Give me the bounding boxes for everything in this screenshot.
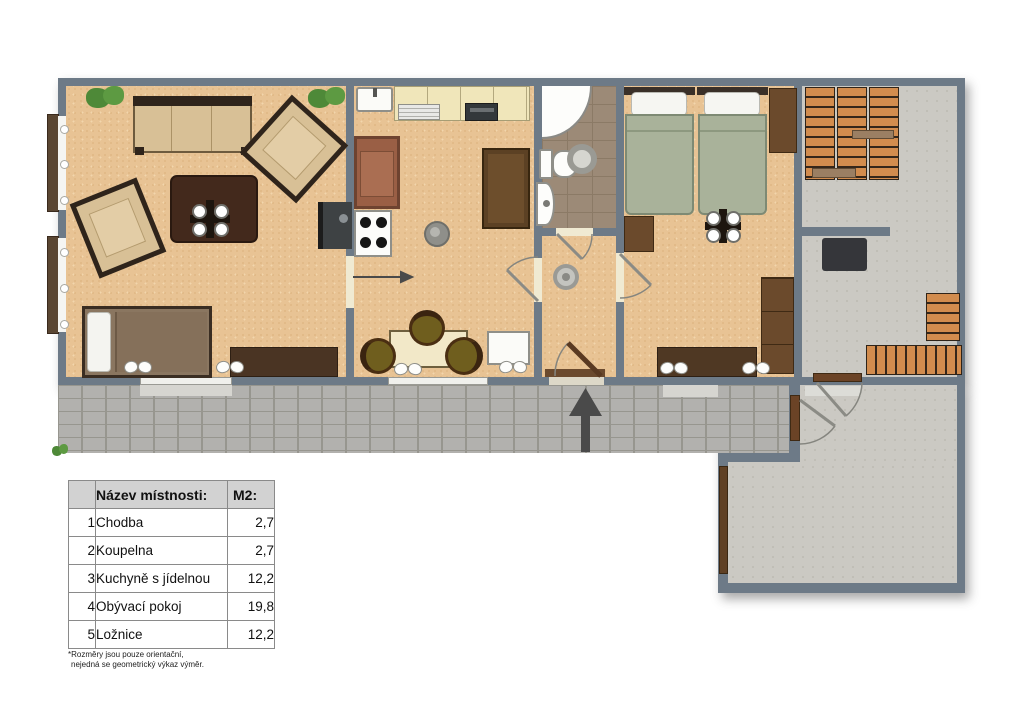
room-name: Ložnice [96,621,228,649]
burner [360,237,371,248]
wood-stack [866,345,962,375]
room-area: 12,2 [228,621,275,649]
wall-annex-step [718,453,800,462]
ceiling-light-center [562,273,570,281]
cup-icon [706,211,721,226]
windowsill-flower-icon [60,125,69,134]
sofa [133,96,252,153]
plant-icon [308,87,345,109]
cooktop [354,210,392,257]
toilet-tank [539,149,553,179]
bed-pillow [631,92,687,116]
hallway-floor [542,236,616,377]
cup-icon [214,222,229,237]
floorplan-page: Název místnosti: M2: 1 Chodba 2,7 2 Koup… [0,0,1024,724]
bath-sink-drain [543,200,550,207]
bath-sink [536,182,555,226]
bed [697,87,768,215]
dining-chair [409,310,445,346]
toilet-seat [567,144,597,174]
bed-blanket [625,114,694,215]
wall-annex-bottom [718,583,965,593]
windowsill-flower-icon [60,160,69,169]
cup-set [705,209,741,243]
bed-blanket [698,114,767,215]
cup-icon [214,204,229,219]
annex-left-door-panel [790,395,800,441]
burner [360,217,371,228]
footnote-line1: *Rozměry jsou pouze orientační, [68,650,204,660]
room-name: Chodba [96,509,228,537]
burner [376,237,387,248]
slippers-icon [394,362,424,375]
cabinet-bedroom [769,88,797,153]
bed-fold [700,130,765,132]
cup-icon [726,211,741,226]
opening-bathroom-door [556,228,593,236]
room-number: 3 [69,565,96,593]
armchair-red [354,136,400,209]
faucet [373,88,377,97]
dining-chair [445,337,483,375]
table-row: 5 Ložnice 12,2 [69,621,275,649]
annex-floor-lower [728,462,957,583]
entrance-threshold [545,369,605,377]
wardrobe-kitchen [482,148,530,229]
slippers-icon [660,361,690,374]
annex-door-pad [805,386,861,396]
slippers-icon [499,360,529,373]
windowsill-flower-icon [60,320,69,329]
oven-handle [470,108,494,112]
legend-header-name: Název místnosti: [96,481,228,509]
sofa-seam [211,106,212,151]
cup-icon [192,204,207,219]
entrance-opening [549,377,604,385]
sofa-foot [135,147,144,155]
daybed-pillow [87,312,111,372]
dark-mat [822,238,867,271]
table-row: 3 Kuchyně s jídelnou 12,2 [69,565,275,593]
footnote: *Rozměry jsou pouze orientační, nejedná … [68,650,204,670]
wall-storage-stub [794,227,890,236]
opening-kitchen-hall [534,258,542,302]
window-living-bottom [140,377,232,385]
table-row: 4 Obývací pokoj 19,8 [69,593,275,621]
storage-annex-door-panel [813,373,862,382]
window-kitchen-bottom [388,377,488,385]
room-area: 12,2 [228,565,275,593]
cup-set [190,200,230,238]
stove-fireplace [318,202,352,249]
kitchen-sink [356,87,393,112]
plant-icon [52,444,68,456]
room-area: 19,8 [228,593,275,621]
oven [465,103,498,121]
footnote-line2: nejedná se geometrický výkaz výměr. [68,660,204,670]
windowsill-flower-icon [60,248,69,257]
armchair-cushion [262,116,326,180]
cabinet-bedroom [624,216,654,252]
dining-chair [360,338,396,374]
plant-icon [86,86,124,110]
burner [376,217,387,228]
stove-ring [339,214,348,223]
legend-header-row: Název místnosti: M2: [69,481,275,509]
room-area: 2,7 [228,509,275,537]
bed-fold [627,130,692,132]
wood-stack [805,87,835,180]
ceiling-light [553,264,579,290]
room-name: Koupelna [96,537,228,565]
wood-plank-gray [812,168,856,178]
cup-icon [192,222,207,237]
table-row: 1 Chodba 2,7 [69,509,275,537]
cup-icon [726,228,741,243]
armchair-cushion [89,198,146,258]
annex-floor-upper [800,385,957,462]
kitchen-counter [394,86,530,121]
opening-living-kitchen [346,256,354,308]
room-number: 1 [69,509,96,537]
sofa-backrest [133,96,252,106]
slippers-icon [124,360,154,373]
wardrobe-front [488,154,524,223]
wood-stack [926,293,960,341]
windowsill-flower-icon [60,284,69,293]
legend-header-num [69,481,96,509]
round-stool-center [430,227,440,237]
cup-icon [706,228,721,243]
sideboard-living [230,347,338,377]
slippers-icon [742,361,772,374]
room-number: 5 [69,621,96,649]
round-stool [424,221,450,247]
room-number: 2 [69,537,96,565]
tray-bar [206,200,214,238]
windowsill-flower-icon [60,196,69,205]
bed-pillow [704,92,760,116]
terrace-pad-bedroom [663,385,718,397]
legend-header-area: M2: [228,481,275,509]
wood-plank-gray [852,130,894,139]
room-name: Kuchyně s jídelnou [96,565,228,593]
opening-hall-bedroom [616,253,624,302]
terrace-pad-living [140,385,232,396]
annex-gate [719,466,728,574]
room-number: 4 [69,593,96,621]
cabinet-bedroom-tall [761,277,794,374]
sofa-seam [171,106,172,151]
armchair-cushion [360,151,394,197]
dishwasher [398,104,440,120]
table-row: 2 Koupelna 2,7 [69,537,275,565]
bed [624,87,695,215]
room-name: Obývací pokoj [96,593,228,621]
legend-table: Název místnosti: M2: 1 Chodba 2,7 2 Koup… [68,480,275,649]
slippers-icon [216,360,246,373]
wall-top [58,78,965,86]
room-area: 2,7 [228,537,275,565]
